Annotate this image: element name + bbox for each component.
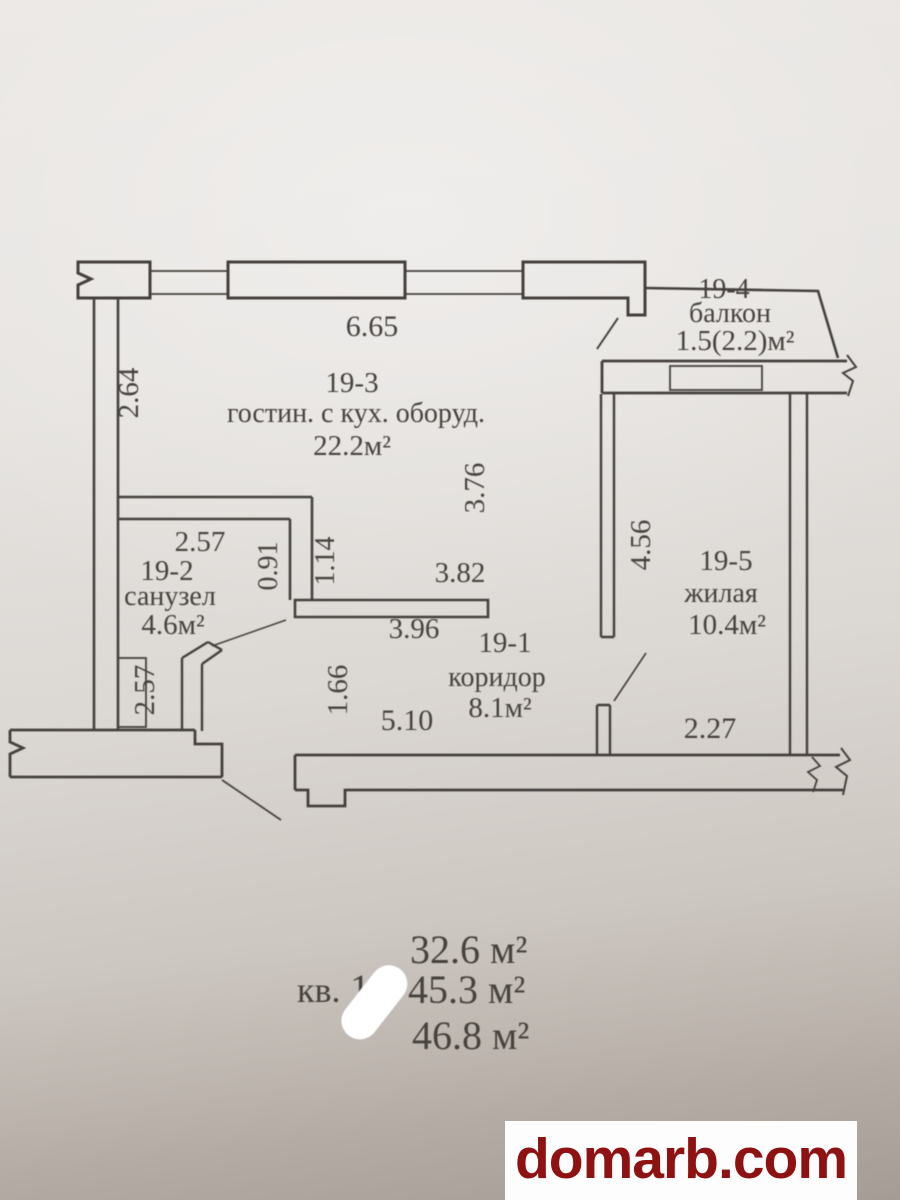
total-living-area: 32.6 м² [410,927,527,972]
south-wall-left [10,730,222,777]
bedroom-east-wall [790,394,807,754]
dim-bath-jog-outer: 1.14 [310,537,341,586]
west-wall [94,298,118,730]
dim-bedroom-width: 2.27 [684,712,737,745]
dim-corridor-height: 1.66 [322,665,354,716]
room-balcony-area: 1.5(2.2)м² [676,325,795,357]
dim-left-height: 2.64 [113,367,145,418]
dim-corridor-width: 5.10 [381,704,434,737]
north-pier-left [78,262,150,298]
balcony-door-leaf [597,318,618,349]
window-north-1 [150,271,228,294]
labels: 6.65 2.64 19-3 гостин. с кух. оборуд. 22… [113,274,795,745]
bathroom-door-leaf [212,620,286,646]
bedroom-west-wall [601,394,614,637]
entrance-door-leaf [222,780,281,820]
bedroom-door-stub [597,705,610,754]
room-bathroom-name: санузел [124,581,216,612]
floor-plan-photo: 6.65 2.64 19-3 гостин. с кух. оборуд. 22… [0,0,900,1200]
room-living-area: 22.2м² [313,430,391,462]
dim-top-width: 6.65 [346,310,399,343]
total-with-balcony: 46.8 м² [412,1013,529,1058]
room-corridor-number: 19-1 [478,627,531,659]
dim-bath-jog-inner: 0.91 [253,542,284,591]
dim-passage-upper: 3.82 [435,557,486,589]
room-bathroom-area: 4.6м² [141,609,205,641]
south-wall-main [295,755,843,806]
dim-living-depth: 3.76 [459,463,491,514]
totals-block: 32.6 м² кв. 19 45.3 м² 46.8 м² [297,927,529,1058]
bathroom-north-wall [118,497,312,519]
north-pier-middle [228,262,405,298]
north-pier-right [523,262,645,315]
room-living-name: гостин. с кух. оборуд. [227,398,485,429]
dim-bath-height: 2.57 [129,665,161,716]
floor-plan-canvas: 6.65 2.64 19-3 гостин. с кух. оборуд. 22… [0,0,900,1200]
apartment-label: кв. [297,970,341,1010]
watermark: domarb.com [505,1121,857,1200]
room-bedroom-area: 10.4м² [688,609,766,641]
watermark-text: domarb.com [515,1127,847,1191]
window-bedroom [670,366,762,390]
room-living-number: 19-3 [325,367,378,399]
dim-passage-lower: 3.96 [389,613,440,645]
room-bedroom-name: жилая [683,578,758,609]
bathroom-door-stub [182,642,222,731]
bedroom-door-leaf [614,653,646,701]
dim-bath-width: 2.57 [175,526,226,558]
dim-bedroom-depth: 4.56 [625,520,657,571]
room-bedroom-number: 19-5 [699,545,752,577]
room-corridor-area: 8.1м² [468,692,532,724]
wall-break-bedroom-corner [808,757,820,792]
total-area: 45.3 м² [408,967,525,1012]
window-north-2 [405,271,523,294]
room-corridor-name: коридор [448,662,545,693]
bathroom-east-wall [290,497,312,600]
